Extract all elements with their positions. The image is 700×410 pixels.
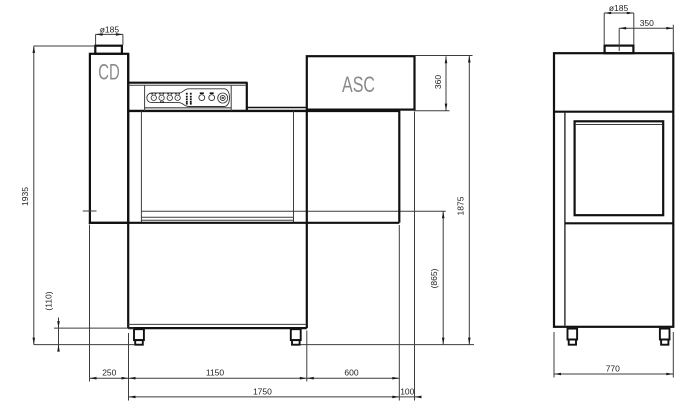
- svg-text:250: 250: [102, 368, 116, 378]
- svg-text:1750: 1750: [253, 386, 272, 396]
- svg-text:600: 600: [344, 368, 358, 378]
- svg-text:350: 350: [640, 18, 654, 28]
- svg-text:1150: 1150: [206, 368, 225, 378]
- svg-text:100: 100: [400, 386, 414, 396]
- svg-text:(865): (865): [429, 268, 439, 288]
- svg-text:CD: CD: [98, 60, 120, 85]
- svg-text:(110): (110): [44, 291, 54, 310]
- svg-text:1875: 1875: [455, 196, 465, 215]
- svg-text:1935: 1935: [20, 187, 30, 206]
- svg-text:ASC: ASC: [342, 72, 375, 97]
- svg-text:360: 360: [433, 75, 443, 89]
- svg-text:770: 770: [606, 363, 620, 373]
- svg-text:ø185: ø185: [100, 25, 120, 35]
- svg-text:ø185: ø185: [609, 3, 629, 13]
